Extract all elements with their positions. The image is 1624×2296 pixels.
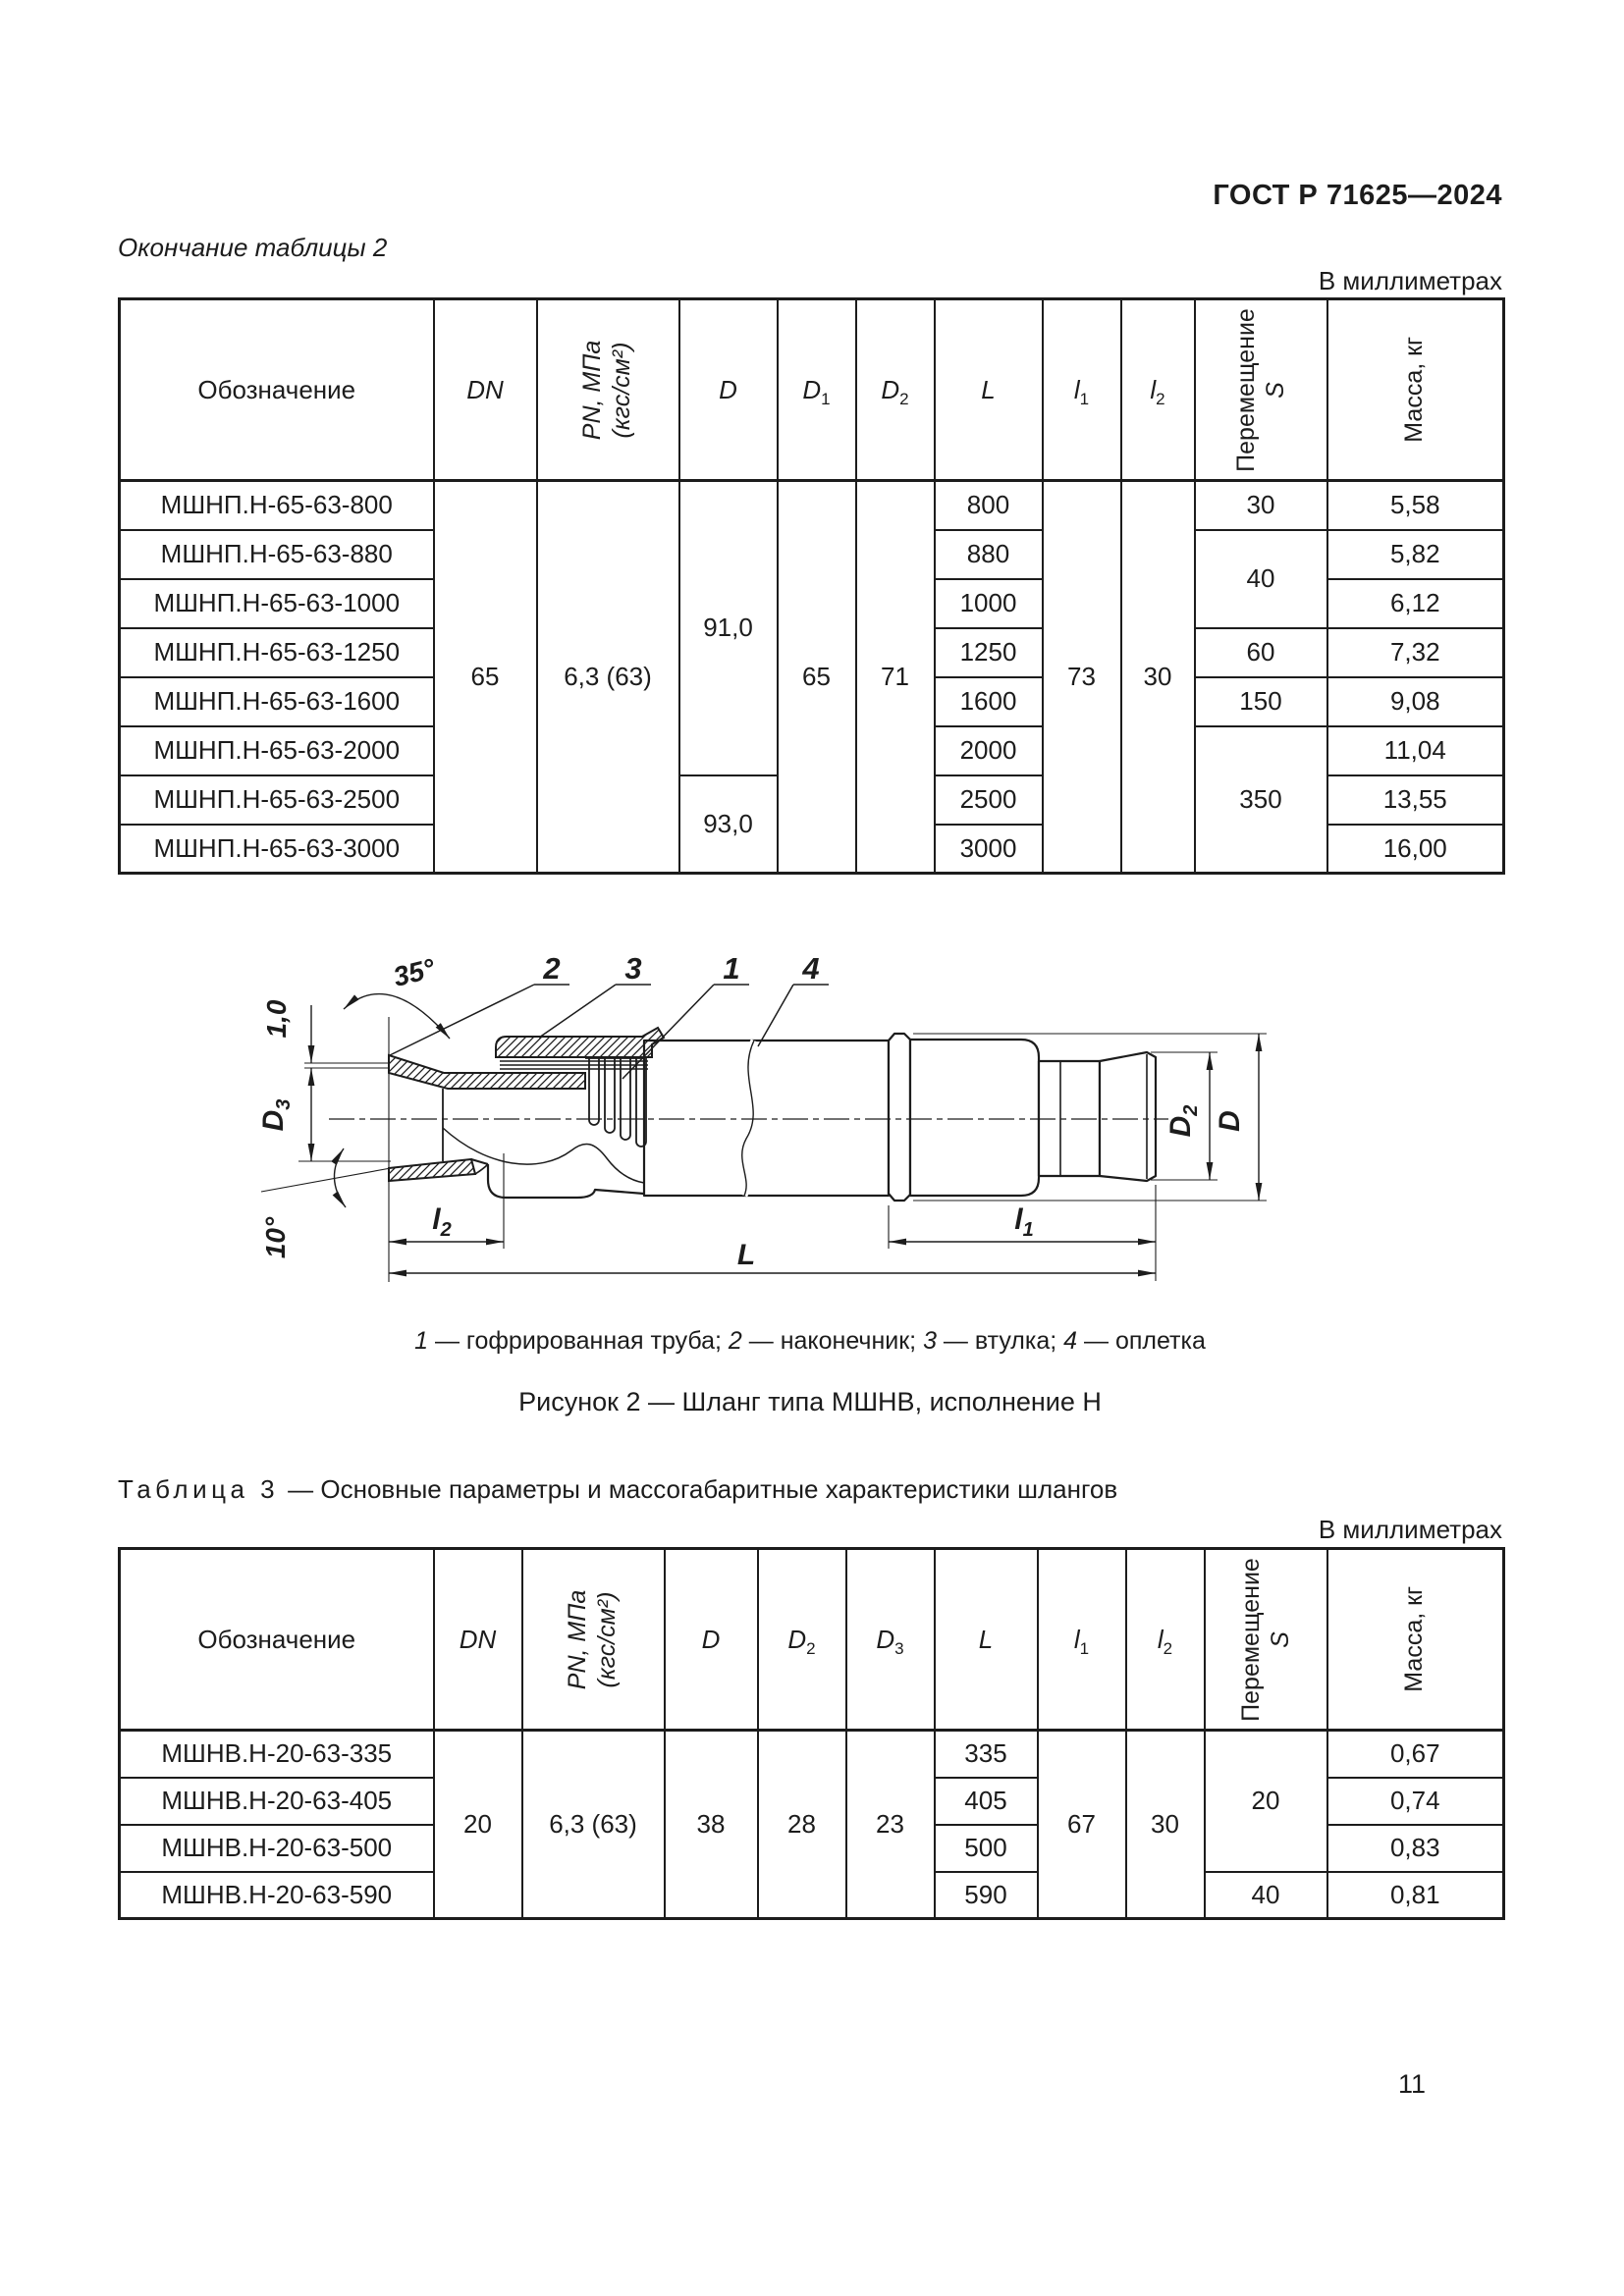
cell-pn: 6,3 (63) <box>522 1731 665 1919</box>
cell-dn: 20 <box>434 1731 522 1919</box>
standard-number: ГОСТ Р 71625—2024 <box>118 180 1502 212</box>
table-row: МШНВ.Н-20-63-335 20 6,3 (63) 38 28 23 33… <box>120 1731 1504 1778</box>
table-3: Обозначение DN PN, МПа (кгс/см²) D D2 D3… <box>118 1547 1505 1920</box>
document-page: ГОСТ Р 71625—2024 Окончание таблицы 2 В … <box>0 0 1624 2296</box>
table-continuation-label: Окончание таблицы 2 <box>118 233 387 263</box>
cell-l: 1000 <box>935 579 1043 628</box>
cell-displacement: 60 <box>1195 628 1327 677</box>
col-header-mass: Масса, кг <box>1327 1549 1504 1731</box>
col-header-d3: D3 <box>846 1549 935 1731</box>
cell-displacement: 20 <box>1205 1731 1327 1872</box>
cell-designation: МШНП.Н-65-63-3000 <box>120 825 434 874</box>
table-3-label: Таблица 3 <box>118 1474 279 1504</box>
legend-text: — втулка; <box>937 1327 1063 1355</box>
cell-designation: МШНВ.Н-20-63-590 <box>120 1872 434 1919</box>
figure-caption: Рисунок 2 — Шланг типа МШНВ, исполнение … <box>118 1387 1502 1417</box>
braid-layer-lines <box>500 1061 648 1069</box>
cell-designation: МШНП.Н-65-63-800 <box>120 481 434 530</box>
cell-mass: 0,67 <box>1327 1731 1504 1778</box>
cell-designation: МШНП.Н-65-63-2000 <box>120 726 434 775</box>
col-header-l2: l2 <box>1121 299 1195 481</box>
cell-d3: 23 <box>846 1731 935 1919</box>
cell-l: 1600 <box>935 677 1043 726</box>
callout-1: 1 <box>723 951 739 986</box>
cell-l1: 67 <box>1038 1731 1126 1919</box>
cell-mass: 7,32 <box>1327 628 1504 677</box>
fitting-flare-bottom-section <box>389 1159 475 1181</box>
cell-mass: 6,12 <box>1327 579 1504 628</box>
cell-mass: 0,83 <box>1327 1825 1504 1872</box>
col-header-dn: DN <box>434 1549 522 1731</box>
legend-num: 2 <box>729 1327 742 1355</box>
cell-mass: 0,81 <box>1327 1872 1504 1919</box>
cell-l2: 30 <box>1121 481 1195 874</box>
cell-pn: 6,3 (63) <box>537 481 679 874</box>
col-header-l1: l1 <box>1043 299 1121 481</box>
d-diameter-label: D <box>1214 1110 1246 1132</box>
hose-technical-drawing: 2 3 1 4 35° 1,0 D3 10° l2 L l1 D2 D <box>177 913 1375 1306</box>
cell-l: 880 <box>935 530 1043 579</box>
col-header-displacement: ПеремещениеS <box>1195 299 1327 481</box>
cell-displacement: 40 <box>1195 530 1327 628</box>
cell-mass: 9,08 <box>1327 677 1504 726</box>
fitting-bottom-edge <box>471 1159 488 1164</box>
cell-mass: 11,04 <box>1327 726 1504 775</box>
col-header-displacement: ПеремещениеS <box>1205 1549 1327 1731</box>
cell-designation: МШНВ.Н-20-63-500 <box>120 1825 434 1872</box>
cell-l: 405 <box>935 1778 1038 1825</box>
cell-d1: 65 <box>778 481 856 874</box>
cell-l: 2000 <box>935 726 1043 775</box>
table-3-header-row: Обозначение DN PN, МПа (кгс/см²) D D2 D3… <box>120 1549 1504 1731</box>
cell-designation: МШНП.Н-65-63-880 <box>120 530 434 579</box>
sleeve-section <box>496 1028 664 1057</box>
cell-mass: 5,58 <box>1327 481 1504 530</box>
cell-displacement: 350 <box>1195 726 1327 874</box>
cell-mass: 5,82 <box>1327 530 1504 579</box>
col-header-d: D <box>679 299 778 481</box>
braid-section <box>644 1041 889 1196</box>
col-header-designation: Обозначение <box>120 1549 434 1731</box>
table-3-name: — Основные параметры и массогабаритные х… <box>288 1474 1117 1504</box>
callout-2: 2 <box>542 951 560 986</box>
ferrule-collar-bottom <box>488 1164 644 1198</box>
cell-d2: 28 <box>758 1731 846 1919</box>
callout-4: 4 <box>801 951 819 986</box>
d2-diameter-label: D2 <box>1164 1105 1202 1138</box>
corrugated-tube <box>589 1058 646 1147</box>
col-header-d1: D1 <box>778 299 856 481</box>
cell-designation: МШНП.Н-65-63-1250 <box>120 628 434 677</box>
fitting-wall-section-top <box>389 1055 585 1089</box>
cell-designation: МШНП.Н-65-63-2500 <box>120 775 434 825</box>
legend-num: 3 <box>923 1327 937 1355</box>
col-header-l: L <box>935 299 1043 481</box>
l2-label: l2 <box>432 1203 451 1241</box>
table-2: Обозначение DN PN, МПа (кгс/см²) D D1 D2… <box>118 297 1505 875</box>
legend-text: — гофрированная труба; <box>428 1327 729 1355</box>
col-header-dn: DN <box>434 299 537 481</box>
callout-3: 3 <box>624 951 641 986</box>
cell-l: 1250 <box>935 628 1043 677</box>
col-header-pn: PN, МПа (кгс/см²) <box>522 1549 665 1731</box>
legend-text: — оплетка <box>1077 1327 1206 1355</box>
units-note-table3: В миллиметрах <box>118 1515 1502 1545</box>
cell-l: 3000 <box>935 825 1043 874</box>
cell-d: 91,0 <box>679 481 778 775</box>
thickness-label: 1,0 <box>261 999 292 1038</box>
cell-designation: МШНП.Н-65-63-1600 <box>120 677 434 726</box>
angle-10-label: 10° <box>260 1216 291 1258</box>
cell-l: 590 <box>935 1872 1038 1919</box>
col-header-d2: D2 <box>856 299 935 481</box>
cell-designation: МШНП.Н-65-63-1000 <box>120 579 434 628</box>
legend-num: 1 <box>414 1327 428 1355</box>
right-fitting-body <box>910 1040 1039 1196</box>
cell-mass: 16,00 <box>1327 825 1504 874</box>
cell-designation: МШНВ.Н-20-63-335 <box>120 1731 434 1778</box>
cell-l: 2500 <box>935 775 1043 825</box>
cell-dn: 65 <box>434 481 537 874</box>
d3-label: D3 <box>257 1099 295 1132</box>
col-header-mass: Масса, кг <box>1327 299 1504 481</box>
table-row: МШНП.Н-65-63-800 65 6,3 (63) 91,0 65 71 … <box>120 481 1504 530</box>
cell-mass: 13,55 <box>1327 775 1504 825</box>
col-header-l: L <box>935 1549 1038 1731</box>
cell-l2: 30 <box>1126 1731 1205 1919</box>
col-header-d2: D2 <box>758 1549 846 1731</box>
cell-l: 800 <box>935 481 1043 530</box>
cell-l: 335 <box>935 1731 1038 1778</box>
cell-designation: МШНВ.Н-20-63-405 <box>120 1778 434 1825</box>
cell-l1: 73 <box>1043 481 1121 874</box>
cell-d: 38 <box>665 1731 758 1919</box>
table-2-header-row: Обозначение DN PN, МПа (кгс/см²) D D1 D2… <box>120 299 1504 481</box>
page-number: 11 <box>1398 2069 1426 2100</box>
legend-text: — наконечник; <box>742 1327 923 1355</box>
figure-legend: 1 — гофрированная труба; 2 — наконечник;… <box>118 1327 1502 1356</box>
cell-mass: 0,74 <box>1327 1778 1504 1825</box>
right-fitting-flange <box>889 1034 910 1201</box>
col-header-pn: PN, МПа (кгс/см²) <box>537 299 679 481</box>
col-header-d: D <box>665 1549 758 1731</box>
col-header-l2: l2 <box>1126 1549 1205 1731</box>
cell-l: 500 <box>935 1825 1038 1872</box>
legend-num: 4 <box>1063 1327 1077 1355</box>
units-note-table2: В миллиметрах <box>118 266 1502 296</box>
cell-displacement: 40 <box>1205 1872 1327 1919</box>
cell-displacement: 150 <box>1195 677 1327 726</box>
angle-35-label: 35° <box>390 952 438 992</box>
L-label: L <box>737 1239 755 1271</box>
col-header-l1: l1 <box>1038 1549 1126 1731</box>
col-header-designation: Обозначение <box>120 299 434 481</box>
l1-label: l1 <box>1014 1203 1033 1241</box>
fitting-bottom-corner <box>475 1164 488 1174</box>
table-3-title: Таблица 3— Основные параметры и массогаб… <box>118 1474 1502 1505</box>
cell-displacement: 30 <box>1195 481 1327 530</box>
cell-d2: 71 <box>856 481 935 874</box>
cell-d: 93,0 <box>679 775 778 874</box>
